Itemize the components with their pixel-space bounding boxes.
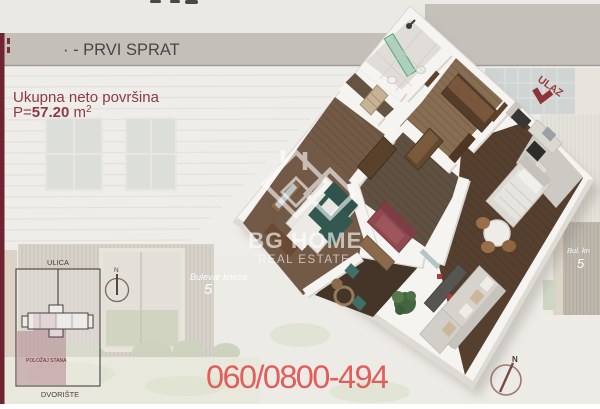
svg-text:P=57.20 m2: P=57.20 m2	[13, 104, 92, 121]
svg-text:Bul. kn: Bul. kn	[567, 246, 590, 255]
svg-text:5: 5	[204, 281, 213, 298]
svg-text:ULICA: ULICA	[47, 258, 69, 267]
svg-text:REAL ESTATE: REAL ESTATE	[258, 254, 350, 266]
svg-text:N: N	[512, 355, 518, 364]
svg-text:· - PRVI SPRAT: · - PRVI SPRAT	[63, 41, 180, 59]
svg-text:060/0800-494: 060/0800-494	[206, 359, 389, 395]
svg-text:DVORIŠTE: DVORIŠTE	[41, 390, 79, 399]
svg-text:Bulevar kneza: Bulevar kneza	[190, 272, 247, 282]
svg-text:POLOŽAJ STANA: POLOŽAJ STANA	[26, 356, 67, 364]
svg-text:N: N	[114, 267, 119, 274]
svg-text:BG HOME: BG HOME	[248, 228, 363, 253]
svg-text:5: 5	[577, 256, 585, 271]
